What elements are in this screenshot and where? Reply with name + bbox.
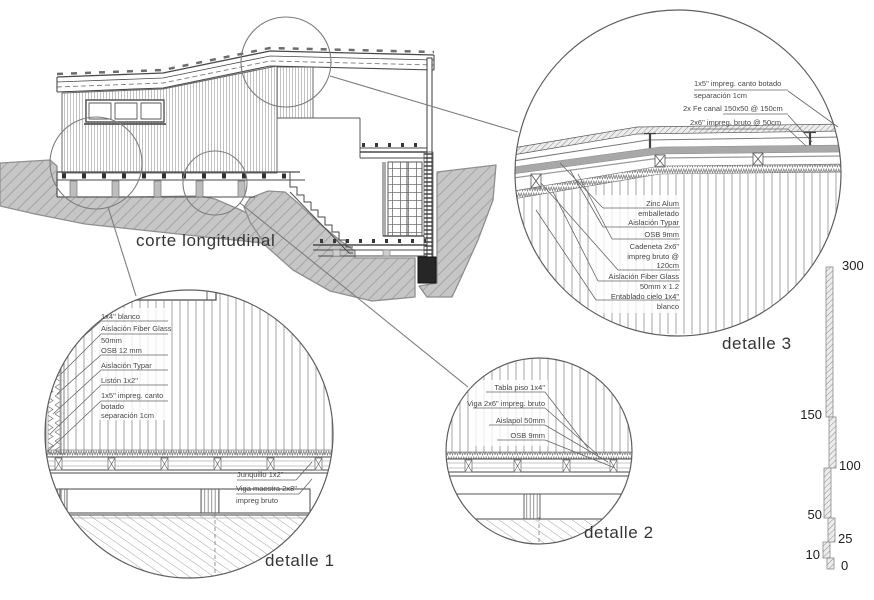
scale-bar-segment: [823, 542, 830, 558]
detail3-label: detalle 3: [722, 334, 792, 354]
annotation-d3-zinc-1: Zinc Alum: [646, 199, 679, 208]
annotation-d1-impreg-1: 1x5" impreg. canto: [101, 391, 163, 400]
ladder-strip: [424, 152, 433, 262]
annotation-d1-fiberglass-size: 50mm: [101, 336, 122, 345]
leader-to-detail3: [330, 76, 518, 132]
annotation-d1-osb: OSB 12 mm: [101, 346, 142, 355]
annotation-d3-cadeneta-2: impreg bruto @: [627, 252, 679, 261]
section-title: corte longitudinal: [136, 231, 275, 251]
interior-opening-lines: [277, 118, 360, 158]
annotation-d1-impreg-2: botado: [101, 402, 124, 411]
scale-bar-segment: [828, 518, 835, 542]
annotation-d2-viga: Viga 2x6" impreg. bruto: [467, 399, 545, 408]
annotation-d1-liston: Listón 1x2": [101, 376, 138, 385]
detail1-floor-insulation: [46, 450, 338, 457]
annotation-d1-junquillo: Junquillo 1x2": [237, 470, 283, 479]
annotation-d1-viga-2: impreg bruto: [236, 496, 278, 505]
scale-bar-segment: [826, 267, 833, 417]
scale-value-50: 50: [808, 507, 822, 522]
floor-posts: [70, 181, 245, 197]
annotation-d1-blanco: 1x4" blanco: [101, 312, 140, 321]
detail2-label: detalle 2: [584, 523, 654, 543]
scale-value-100: 100: [839, 458, 861, 473]
annotation-d1-impreg-3: separación 1cm: [101, 411, 154, 420]
scale-value-25: 25: [838, 531, 852, 546]
annotation-d1-typar: Aislación Typar: [101, 361, 152, 370]
clerestory-wall: [277, 67, 313, 118]
annotation-d2-osb: OSB 9mm: [510, 431, 545, 440]
annotation-d3-deck-2: separación 1cm: [694, 91, 747, 100]
architectural-drawing-canvas: corte longitudinal detalle 1 detalle 2 d…: [0, 0, 874, 600]
detail2-floor-insulation: [444, 452, 636, 459]
window-band: [84, 100, 166, 124]
annotation-d1-fiberglass: Aislación Fiber Glass: [101, 324, 171, 333]
annotation-d3-deck-1: 1x5" impreg. canto botado: [694, 79, 781, 88]
annotation-d3-osb: OSB 9mm: [644, 230, 679, 239]
railing-mesh: [383, 162, 424, 236]
annotation-d2-tabla: Tabla piso 1x4": [494, 383, 545, 392]
annotation-d3-2x6: 2x6" impreg. bruto @ 50cm: [690, 118, 781, 127]
scale-bar: [823, 267, 836, 569]
annotation-d3-entablado-2: blanco: [657, 302, 679, 311]
footing-block: [418, 257, 436, 283]
annotation-d3-cadeneta-3: 120cm: [656, 261, 679, 270]
annotation-d3-fiberglass-2: 50mm x 1.2: [640, 282, 679, 291]
scale-bar-segment: [829, 417, 836, 468]
scale-bar-segment: [824, 468, 831, 518]
section-drawing-svg: [0, 0, 874, 600]
scale-bar-segment: [827, 558, 834, 569]
scale-value-150: 150: [800, 407, 822, 422]
detail1-label: detalle 1: [265, 551, 335, 571]
annotation-d3-fiberglass-1: Aislación Fiber Glass: [609, 272, 679, 281]
upper-deck: [360, 145, 428, 158]
scale-value-0: 0: [841, 558, 848, 573]
annotation-d3-typar: Aislación Typar: [628, 218, 679, 227]
annotation-d3-entablado-1: Entablado cielo 1x4": [611, 292, 679, 301]
annotation-d1-viga-1: Viga maestra 2x8": [236, 484, 297, 493]
annotation-d3-cadeneta-1: Cadeneta 2x6": [630, 242, 679, 251]
scale-value-10: 10: [806, 547, 820, 562]
scale-value-300: 300: [842, 258, 864, 273]
annotation-d2-aislapol: Aislapol 50mm: [496, 416, 545, 425]
annotation-d3-zinc-2: emballetado: [638, 209, 679, 218]
annotation-d3-fecanal: 2x Fe canal 150x50 @ 150cm: [683, 104, 783, 113]
